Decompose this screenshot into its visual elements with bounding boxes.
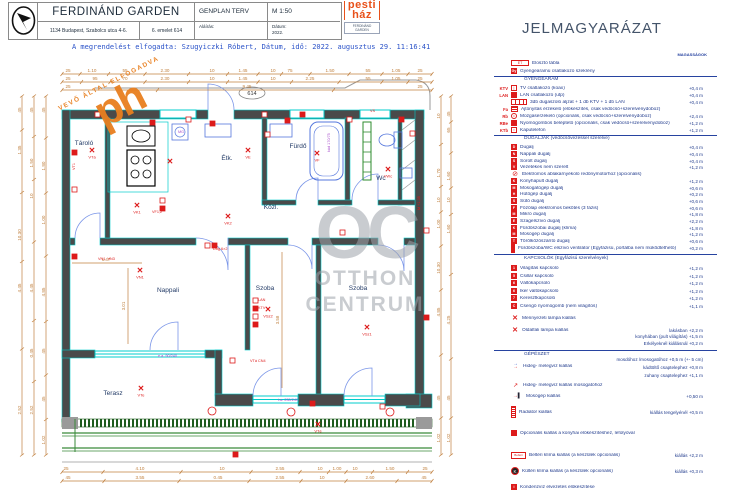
dim-label: 25 <box>65 84 71 89</box>
legend-row: Radiátor kiálláskiállás tengelyénél +0,5… <box>494 408 729 416</box>
legend-height-note: Erkélyeknél kiállásnál +0,2 m <box>644 341 703 346</box>
legend-panel: JELMAGYARÁZAT MAGASSÁGOK GYENGEÁRAMDUGAL… <box>490 0 729 500</box>
red-annotation: M +1,35 <box>417 196 421 210</box>
dim-label: 1.70 <box>436 168 441 177</box>
pesti-haz-logo-caption: FERDINÁND GARDEN <box>344 22 380 34</box>
electrical-symbol-box <box>300 112 305 117</box>
dim-label: 55 <box>365 68 371 73</box>
fixture-annotation: kád 170/75 <box>327 133 331 152</box>
dim-label: 45 <box>41 107 46 113</box>
electrical-symbol-box <box>399 117 404 122</box>
legend-row-prefix: Rb <box>494 114 508 119</box>
title-block: FERDINÁND GARDEN 1134 Budapest, Szabolcs… <box>8 2 342 40</box>
electrical-symbol-box <box>233 452 238 457</box>
legend-row-height: +1,2 m <box>687 281 703 286</box>
legend-row-label: Ajtónyitás érzékelő (előkészítés, csak v… <box>521 107 729 112</box>
legend-row: Opcionális kiállás a konyhai előkészítés… <box>494 429 729 437</box>
electrical-symbol-label: VE <box>245 155 251 160</box>
position-marker-circle <box>208 407 216 415</box>
room-label: Étk. <box>221 153 232 162</box>
fill-icon: Gy <box>511 68 517 74</box>
dim-label: 10 <box>436 197 441 203</box>
rad-icon <box>511 406 516 418</box>
dim-label: 45 <box>446 395 451 401</box>
electrical-symbol-label: VTe <box>138 393 146 398</box>
red-annotation: VTá CN4 <box>250 359 266 363</box>
legend-row-height: +1,8 m <box>687 212 703 217</box>
legend-row-label: Hideg- melegvíz kiállás mosogatóhoz <box>523 383 729 388</box>
dim-label: 1.35 <box>17 145 22 154</box>
fill-icon: 7 <box>511 295 517 301</box>
dim-label: 1.00 <box>436 219 441 228</box>
x-icon: ✕ <box>511 314 519 322</box>
legend-row-label: Gyengeáramú csatlakozó szekrény <box>520 69 729 74</box>
legend-row: CCsengő nyomógomb (nem világítós)+1,1 m <box>494 302 729 310</box>
legend-section-header: GÉPÉSZET <box>524 352 550 357</box>
shaft-hatch <box>402 120 415 190</box>
electrical-symbol-box <box>285 118 290 123</box>
dim-label: 10 <box>317 466 323 471</box>
dim-label: 1.02 <box>436 433 441 442</box>
dim-label: 1.60 <box>446 171 451 180</box>
dim-label: 45 <box>41 348 46 354</box>
legend-section-header: KAPCSOLÓK (Egyfázisú szerelvények) <box>524 256 608 261</box>
legend-row-height: +1,1 m <box>687 304 703 309</box>
dim-label: 9.45 <box>243 84 252 89</box>
dim-label: 10 <box>209 76 215 81</box>
unit-number: 614 <box>247 91 256 97</box>
red-annotation: VS <box>370 109 376 113</box>
legend-row-height: +0,4 m <box>687 86 703 91</box>
dim-label: 2.60 <box>366 475 375 480</box>
legend-row-height: +0,4 m <box>687 152 703 157</box>
dim-label: 10 <box>270 76 276 81</box>
legend-row-label: Opcionális kiállás a konyhai előkészítés… <box>520 431 729 436</box>
dim-label: 4.10 <box>136 466 145 471</box>
legend-row-prefix: KTV <box>494 86 508 91</box>
dim-label: 1.02 <box>41 435 46 444</box>
electrical-symbol-box <box>253 314 258 319</box>
electrical-symbol-box <box>262 112 267 117</box>
legend-row-height: +0,50 m <box>684 394 703 399</box>
dim-label: 2.52 <box>17 405 22 414</box>
dim-label: 3.55 <box>136 475 145 480</box>
dim-label: 55 <box>365 76 371 81</box>
electrical-symbol-label: VN1 <box>136 275 145 280</box>
legend-heights-header: MAGASSÁGOK <box>677 52 707 57</box>
legend-row-prefix: LAN <box>494 93 508 98</box>
electrical-symbol-label: VWc <box>384 174 392 179</box>
fill-icon: 6 <box>511 280 517 286</box>
electrical-symbol-box <box>340 230 345 235</box>
caption-line2: GARDEN <box>355 28 369 32</box>
approval-line: A megrendelést elfogadta: Szugyiczki Rób… <box>72 43 492 51</box>
legend-height-note: zuhany csaptelephez +1,1 m <box>644 373 703 378</box>
legend-row-height: +1,2 m <box>687 128 703 133</box>
legend-row-height: +0,2 m <box>687 246 703 251</box>
legend-title: JELMAGYARÁZAT <box>522 20 662 37</box>
wc-toilet <box>379 134 395 146</box>
legend-divider <box>494 254 717 255</box>
electrical-symbol-box <box>424 315 429 320</box>
mk-icon: →▌ <box>511 393 523 399</box>
dim-label: 1.05 <box>392 76 401 81</box>
electrical-symbol-box <box>72 254 77 259</box>
dim-label: 4.45 <box>29 283 34 292</box>
fixture-annotation: MG <box>178 130 184 134</box>
dim-label: 45 <box>65 475 71 480</box>
dim-label: 75 <box>287 68 293 73</box>
room-label: Fürdő <box>290 143 307 150</box>
dim-label: 10 <box>319 475 325 480</box>
drawing-scale: M 1:50 <box>267 3 340 21</box>
legend-row-height: +1,2 m <box>687 179 703 184</box>
stove <box>127 150 155 186</box>
fill-icon: i <box>511 484 517 490</box>
electrical-symbol-box <box>230 358 235 363</box>
legend-row: ETElosztó tábla <box>494 59 729 67</box>
legend-row-label: Kondenzvíz elvezetés előkészítése <box>520 485 729 490</box>
dim-label: 10 <box>209 68 215 73</box>
dim-label: 10 <box>219 466 225 471</box>
electrical-symbol-label: VK2 <box>224 221 232 226</box>
legend-section-header: DUGALJAK (védőcsövezéssel szerelve) <box>524 136 610 141</box>
interior-dim-label: 3.01 <box>121 301 126 310</box>
electrical-symbol-box <box>424 228 429 233</box>
position-marker-circle <box>287 408 295 416</box>
dim-label: 1.00 <box>333 466 342 471</box>
unit-label: 6. emelet 614 <box>139 21 194 39</box>
architect-logo-icon <box>11 5 36 36</box>
fixture-annotation: e.a. 90/240 <box>158 354 177 358</box>
dim-label: 10 <box>436 113 441 119</box>
electrical-symbol-box <box>265 132 270 137</box>
electrical-symbol-label: VSz2 <box>263 314 273 319</box>
fixture-annotation: t.a. 230/240 <box>278 398 298 402</box>
red-annotation: VT1 <box>72 163 76 170</box>
drawing-type: GENPLAN TERV <box>194 3 267 21</box>
legend-row-height: +1,2 m <box>687 121 703 126</box>
legend-row-label: Mennyezeti lámpa kiállás <box>522 316 729 321</box>
kult-icon: K <box>511 467 519 475</box>
red-annotation: Dug 6×2 <box>213 247 227 251</box>
dim-label: 1.60 <box>446 224 451 233</box>
dim-label: 4.85 <box>436 307 441 316</box>
kitchen-sink <box>127 126 155 146</box>
legend-row: 7Keresztkapcsoló+1,2 m <box>494 294 729 302</box>
dim-label: 1.00 <box>41 215 46 224</box>
interior-dim-label: 3.58 <box>275 315 280 324</box>
dim-label: 1.50 <box>386 466 395 471</box>
pesti-haz-logo-line2: ház <box>344 11 380 21</box>
date-cell: Dátum: 2022. <box>267 21 340 39</box>
red-annotation: VN1, VN3 <box>98 257 115 261</box>
legend-row: BeltériBeltéri klíma kiállás (a készülék… <box>494 451 729 459</box>
room-label: Közl. <box>264 204 279 211</box>
dim-label: 10 <box>29 193 34 199</box>
legend-row-height: +1,2 m <box>687 274 703 279</box>
legend-row-height: +0,2 m <box>687 192 703 197</box>
wide-icon: ET <box>511 60 529 66</box>
washbasin <box>270 124 292 137</box>
dim-label: 25 <box>422 466 428 471</box>
electrical-symbol-box <box>150 120 155 125</box>
legend-row: 1Világítás kapcsoló+1,2 m <box>494 264 729 272</box>
dim-label: 4.85 <box>41 287 46 296</box>
dim-label: 1.50 <box>29 158 34 167</box>
legend-row-label: Elosztó tábla <box>532 61 729 66</box>
dim-label: 0.45 <box>214 475 223 480</box>
legend-row-height: +0,4 m <box>687 93 703 98</box>
dim-label: 10.30 <box>436 262 441 274</box>
dim-label: 45 <box>29 107 34 113</box>
belt-icon: Beltéri <box>511 452 526 459</box>
hmv-icon: →→ <box>511 363 520 369</box>
electrical-symbol-box <box>205 243 210 248</box>
legend-row-height: +2,4 m <box>687 114 703 119</box>
electrical-symbol-label: VF <box>314 158 320 163</box>
dim-label: 4.25 <box>446 315 451 324</box>
dim-label: 45 <box>17 107 22 113</box>
red-annotation: KTV <box>258 306 266 310</box>
electrical-symbol-label: VTé <box>314 429 322 434</box>
electrical-symbol-box <box>380 404 385 409</box>
legend-row: GyGyengeáramú csatlakozó szekrény <box>494 67 729 75</box>
legend-row-height: kiállás +0,3 m <box>673 469 703 474</box>
legend-row-height: +0,6 m <box>687 199 703 204</box>
electrical-symbol-label: VTá <box>88 155 96 160</box>
dim-label: 1.10 <box>88 68 97 73</box>
dim-label: 0.45 <box>29 348 34 357</box>
room-label: Szoba <box>256 285 275 292</box>
dim-label: 2.25 <box>306 76 315 81</box>
dim-label: 45 <box>446 111 451 117</box>
pesti-haz-logo: pesti ház FERDINÁND GARDEN <box>344 1 380 41</box>
dim-label: 1.50 <box>326 68 335 73</box>
dim-label: 95 <box>92 76 98 81</box>
dim-label: 1.45 <box>239 76 248 81</box>
basin <box>205 124 231 137</box>
legend-row-prefix: RBe <box>494 121 508 126</box>
legend-row-prefix: KTb <box>494 128 508 133</box>
dim-label: 25 <box>63 466 69 471</box>
fixtures <box>108 122 412 192</box>
room-label: Szoba <box>349 285 368 292</box>
dim-label: 45 <box>421 475 427 480</box>
electrical-symbol-box <box>160 198 165 203</box>
x-icon: ✕ <box>511 326 519 334</box>
legend-height-note: konyhában (pult világítás) +1,5 m <box>635 334 703 339</box>
legend-row-height: lakásban +2,2 m <box>667 328 703 333</box>
dim-label: 25 <box>417 76 423 81</box>
legend-row-height: +1,2 m <box>687 296 703 301</box>
interior-dim-lines <box>72 252 282 388</box>
signature-label: Aláírás: <box>194 21 267 39</box>
dim-label: 1.02 <box>446 433 451 442</box>
legend-row-height: +1,2 m <box>687 289 703 294</box>
dim-label: 45 <box>41 396 46 402</box>
legend-row-height: kiállás +2,2 m <box>673 453 703 458</box>
dim-label: 25 <box>417 68 423 73</box>
legend-row: ↗Hideg- melegvíz kiállás mosogatóhoz <box>494 381 729 389</box>
dim-label: 10 <box>352 466 358 471</box>
position-marker-circle <box>386 408 394 416</box>
electrical-symbol-box <box>72 150 77 155</box>
legend-row: iKondenzvíz elvezetés előkészítése <box>494 483 729 491</box>
dim-label: 2.55 <box>276 475 285 480</box>
electrical-symbol-x: ✕ <box>167 157 174 166</box>
electrical-symbol-box <box>186 117 191 122</box>
dim-label: 25 <box>65 68 71 73</box>
legend-row: 6Váltókapcsoló+1,2 m <box>494 279 729 287</box>
hmv2-icon: ↗ <box>511 382 520 389</box>
electrical-symbol-box <box>210 121 215 126</box>
dim-label: 2.52 <box>29 405 34 414</box>
legend-row: ✕Mennyezeti lámpa kiállás <box>494 314 729 322</box>
legend-row-label: Hideg- melegvíz kiállás <box>523 364 729 369</box>
red-annotation: LAN <box>258 298 266 302</box>
box-icon: ▪ <box>511 127 517 133</box>
towel-radiator <box>363 122 371 180</box>
room-label: Nappali <box>157 287 179 294</box>
legend-row-height: kiállás tengelyénél +0,5 m <box>648 410 703 415</box>
project-address: 1134 Budapest, Szabolcs utca 4-6. <box>37 21 139 39</box>
date-value: 2022. <box>272 30 340 36</box>
dim-label: 2.55 <box>276 466 285 471</box>
dim-label: 1.80 <box>41 161 46 170</box>
dim-label: 10 <box>446 197 451 203</box>
dim-label: 10.30 <box>17 229 22 241</box>
legend-row-height: +0,4 m <box>687 145 703 150</box>
legend-row-height: +1,2 m <box>687 165 703 170</box>
dim-label: 10 <box>270 68 276 73</box>
legend-row-height: +2,2 m <box>687 219 703 224</box>
dim-label: 25 <box>417 84 423 89</box>
legend-row-height: +0,6 m <box>687 239 703 244</box>
electrical-symbol-label: VK1 <box>133 210 141 215</box>
electrical-symbol-label: VSz1 <box>362 332 372 337</box>
dim-label: 25 <box>65 76 71 81</box>
fill-icon <box>511 430 517 436</box>
electrical-symbol-box <box>347 117 352 122</box>
dim-label: 1.45 <box>239 68 248 73</box>
legend-row-height: +0,4 m <box>687 100 703 105</box>
dim-label: 65 <box>446 127 451 133</box>
tall-icon <box>511 244 515 253</box>
legend-row: KTb▪Kaputelefon+1,2 m <box>494 126 729 134</box>
dim-label: 4.45 <box>17 283 22 292</box>
legend-divider <box>494 350 717 351</box>
dim-label: 45 <box>436 395 441 401</box>
fill-icon: C <box>511 303 517 309</box>
legend-row: ✕Oldalfali lámpa kiálláslakásban +2,2 m <box>494 326 729 334</box>
legend-row-height: +1,2 m <box>687 232 703 237</box>
electrical-symbol-box <box>310 401 315 406</box>
project-title: FERDINÁND GARDEN <box>37 3 194 21</box>
room-label: Terasz <box>103 390 122 397</box>
legend-section-header: GYENGEÁRAM <box>524 77 558 82</box>
legend-row-prefix: Fa <box>494 107 508 112</box>
legend-row: KKültéri klíma kiállás (a készülék opcio… <box>494 467 729 475</box>
legend-row-label: Elektromos ablakárnyékoló redőnymotorhoz… <box>522 172 729 177</box>
dim-label: 1.05 <box>392 68 401 73</box>
electrical-symbol-box <box>410 131 415 136</box>
terrace-railing <box>62 417 432 462</box>
legend-row: →→Hideg- melegvíz kiállás <box>494 362 729 370</box>
legend-row-height: +1,2 m <box>687 266 703 271</box>
electrical-symbol-box <box>253 322 258 327</box>
legend-row: →▌Mosógép kiállás+0,50 m <box>494 392 729 400</box>
fill-icon: 1 <box>511 265 517 271</box>
legend-row: Fürdőszoba/WC elszívó ventilátor (Egyfáz… <box>494 244 729 252</box>
red-annotation: VF1,2 <box>152 210 162 214</box>
electrical-symbol-box <box>72 187 77 192</box>
